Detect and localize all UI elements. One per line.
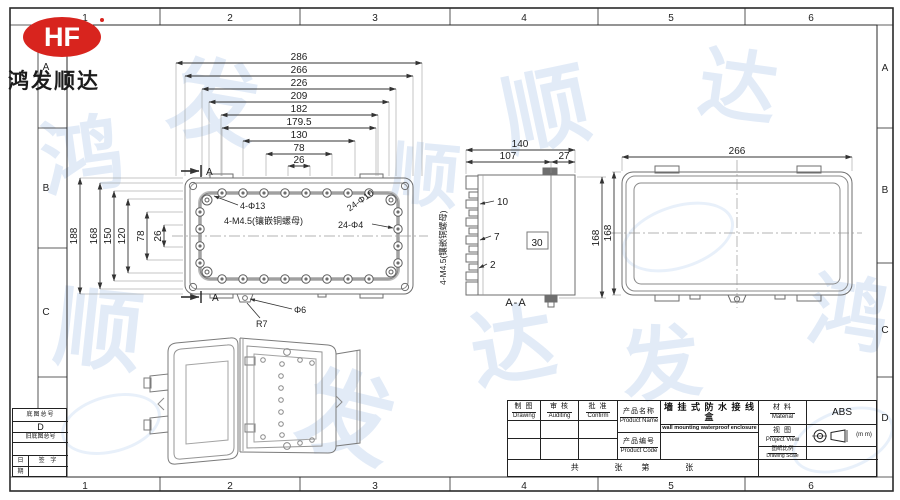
corner-table: 底图总号 D 旧底图总号 日 签 字 期 [12,408,67,477]
grid-col-label: 4 [521,481,527,492]
grid-row-label: C [881,325,888,336]
view-label-en: Project View [766,437,799,444]
material-label-cell: 材 料 Material [759,401,807,425]
plan-view [172,174,428,302]
first-angle-projection-icon [812,428,854,444]
grid-row-label: D [37,422,44,432]
section-left-bumps [466,176,478,295]
old-base-no-label: 旧底图总号 [25,434,55,441]
dim-label: 78 [136,230,147,242]
base-no-label: 底图总号 [26,412,54,419]
company-logo: HF 鸿发顺达 [8,17,104,93]
section-view-label: A-A [505,297,526,309]
grid-col-label: 4 [521,13,527,24]
drafter-date-cell [508,439,541,459]
view-label-zh: 视 图 [770,427,795,437]
dim-label: 78 [293,143,305,154]
annotation-insert: 4-M4.5(镶嵌铜螺母) [224,215,303,226]
dim-label: 168 [89,227,100,244]
blank-cell [29,467,68,477]
product-code-label-cell: 产品编号 Product Code [618,433,661,459]
sign-cell: 签 字 [29,456,68,467]
grid-row-label: B [882,185,889,196]
material-label-zh: 材 料 [770,404,795,414]
grid-row-d-cell: D [13,422,68,433]
product-code-label-zh: 产品编号 [620,438,658,448]
grid-col-label: 6 [808,13,814,24]
grid-col-label: 2 [227,481,233,492]
product-name-label-cell: 产品名称 Product Name [618,401,661,433]
grid-row-label: D [881,413,888,424]
approver-sign-cell [579,421,618,439]
section-dimensions: 140 107 27 168 10 7 2 30 4-M4.5(镶嵌铜螺母) A… [438,139,606,309]
auditor-label-en: Auditing [549,413,571,420]
title-block: 制 图 Drawing 审 核 Auditing 批 准 Confirm 产品名… [507,400,877,477]
auditor-label-zh: 审 核 [547,403,572,413]
approver-date-cell [579,439,618,459]
dim-label: 188 [69,227,80,244]
logo-brand-text: HF [44,22,80,52]
dim-label: 168 [591,229,602,246]
old-base-no-cell: 旧底图总号 [13,433,68,443]
dim-label: 30 [531,238,543,249]
sheet-blank-cell [759,459,877,477]
material-label-en: Material [772,414,793,421]
dim-label: 7 [494,232,500,243]
drafter-label-en: Drawing [513,413,535,420]
dim-label: 140 [512,139,529,150]
annotation-d6: Φ6 [294,305,306,315]
dim-label: 266 [291,65,308,76]
dim-label: 26 [153,230,164,242]
approver-label-zh: 批 准 [586,403,611,413]
material-value-cell: ABS [807,401,877,425]
date-cell-top: 日 [13,456,29,467]
base-no-cell: 底图总号 [13,409,68,422]
grid-col-label: 1 [82,481,88,492]
product-name-label-en: Product Name [620,418,658,425]
dim-label: 182 [291,104,308,115]
product-code-value-cell [661,433,759,459]
product-code-label-en: Product Code [621,448,658,455]
grid-col-label: 3 [372,13,378,24]
logo-trademark-dot [100,18,104,22]
section-marker-a-bottom: A [212,293,219,304]
dim-label: 130 [291,130,308,141]
dim-label: 179.5 [286,117,311,128]
grid-row-label: A [882,63,889,74]
annotation-screw-holes: 24-Φ4 [338,220,363,230]
annotation-r7: R7 [256,319,268,329]
sign-label: 签 字 [39,458,59,465]
material-value: ABS [832,407,852,419]
divider [508,420,618,421]
dim-label: 26 [293,155,305,166]
plan-dimensions: 286 266 226 209 182 179.5 130 78 26 188 [69,52,422,294]
blank-cell [13,443,68,456]
product-name-label-zh: 产品名称 [620,408,658,418]
unit-label: (m m) [856,432,872,439]
dim-label: 10 [497,197,509,208]
dim-label: 226 [291,78,308,89]
section-marker-a-top: A [206,167,213,178]
dim-label: 107 [500,151,517,162]
auditor-sign-cell [541,421,579,439]
grid-col-label: 5 [668,481,674,492]
drafter-cell: 制 图 Drawing [508,401,541,421]
projection-symbol-cell: (m m) [807,425,877,447]
product-name-value-cell: 墙 挂 式 防 水 接 线 盒 wall mounting waterproof… [661,401,759,433]
dim-label: 2 [490,260,496,271]
view-label-cell: 视 图 Project View [759,425,807,447]
drafter-label-zh: 制 图 [512,403,537,413]
scale-value-cell [807,447,877,459]
dim-label: 286 [291,52,308,63]
annotation-corner-holes: 4-Φ13 [240,201,265,211]
section-view [466,168,575,307]
sheet-count-cell: 共 张 第 张 [508,459,759,477]
grid-col-label: 6 [808,481,814,492]
isometric-view [144,338,360,464]
drawing-sheet: 鸿 发 顺 达 顺 发 达 鸿 发 顺 [0,0,900,500]
grid-row-label: B [43,183,50,194]
sheet-count-text: 共 张 第 张 [571,463,695,472]
auditor-cell: 审 核 Auditing [541,401,579,421]
dim-label: 209 [291,91,308,102]
grid-col-label: 3 [372,481,378,492]
dim-label: 120 [117,227,128,244]
dim-label: 27 [558,151,570,162]
section-side-note: 4-M4.5(镶嵌铜螺母) [438,210,448,285]
back-view [610,160,862,308]
scale-label-cell: 图纸比例 Drawing Scale [759,447,807,459]
auditor-date-cell [541,439,579,459]
dim-label: 168 [603,224,614,241]
date-cell-bottom: 期 [13,467,29,477]
date-label-day: 日 [17,458,23,465]
company-name: 鸿发顺达 [8,69,100,93]
back-view-dimensions: 266 168 [603,146,852,295]
grid-row-label: C [42,307,49,318]
grid-col-label: 2 [227,13,233,24]
approver-label-en: Confirm [587,413,608,420]
drafter-sign-cell [508,421,541,439]
date-label-period: 期 [17,469,23,476]
product-name-zh: 墙 挂 式 防 水 接 线 盒 [661,402,758,425]
product-name-en: wall mounting waterproof enclosure [662,425,756,431]
dim-label: 266 [729,146,746,157]
dim-label: 150 [103,227,114,244]
grid-col-label: 5 [668,13,674,24]
approver-cell: 批 准 Confirm [579,401,618,421]
